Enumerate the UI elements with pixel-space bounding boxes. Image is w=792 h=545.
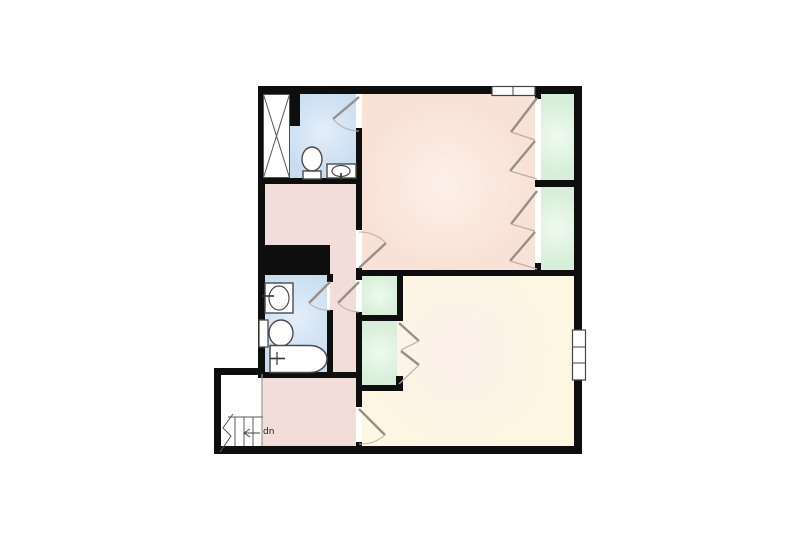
toilet-icon	[259, 320, 293, 347]
bifold-closet-upper-1	[510, 98, 537, 179]
sink-vanity-icon	[262, 283, 293, 313]
toilet-icon	[302, 147, 322, 179]
door-bedroom-upper	[359, 232, 386, 268]
door-bathroom-lower	[309, 282, 330, 310]
bifold-closet-upper-2	[510, 191, 537, 269]
window-right	[573, 330, 586, 380]
stairs-down	[220, 374, 263, 452]
bathtub-icon	[270, 346, 327, 373]
bifold-closet-lower	[399, 323, 419, 384]
window-top	[492, 87, 535, 96]
door-linen-closet	[338, 282, 359, 312]
shower-x-stall	[264, 95, 290, 178]
door-ensuite-bathroom	[333, 97, 359, 131]
floor-plan: dn	[0, 0, 792, 545]
sink-vanity-icon	[327, 164, 356, 180]
door-bedroom-lower	[359, 409, 385, 444]
stairs-direction-label: dn	[263, 427, 274, 437]
plan-linework	[0, 0, 792, 545]
